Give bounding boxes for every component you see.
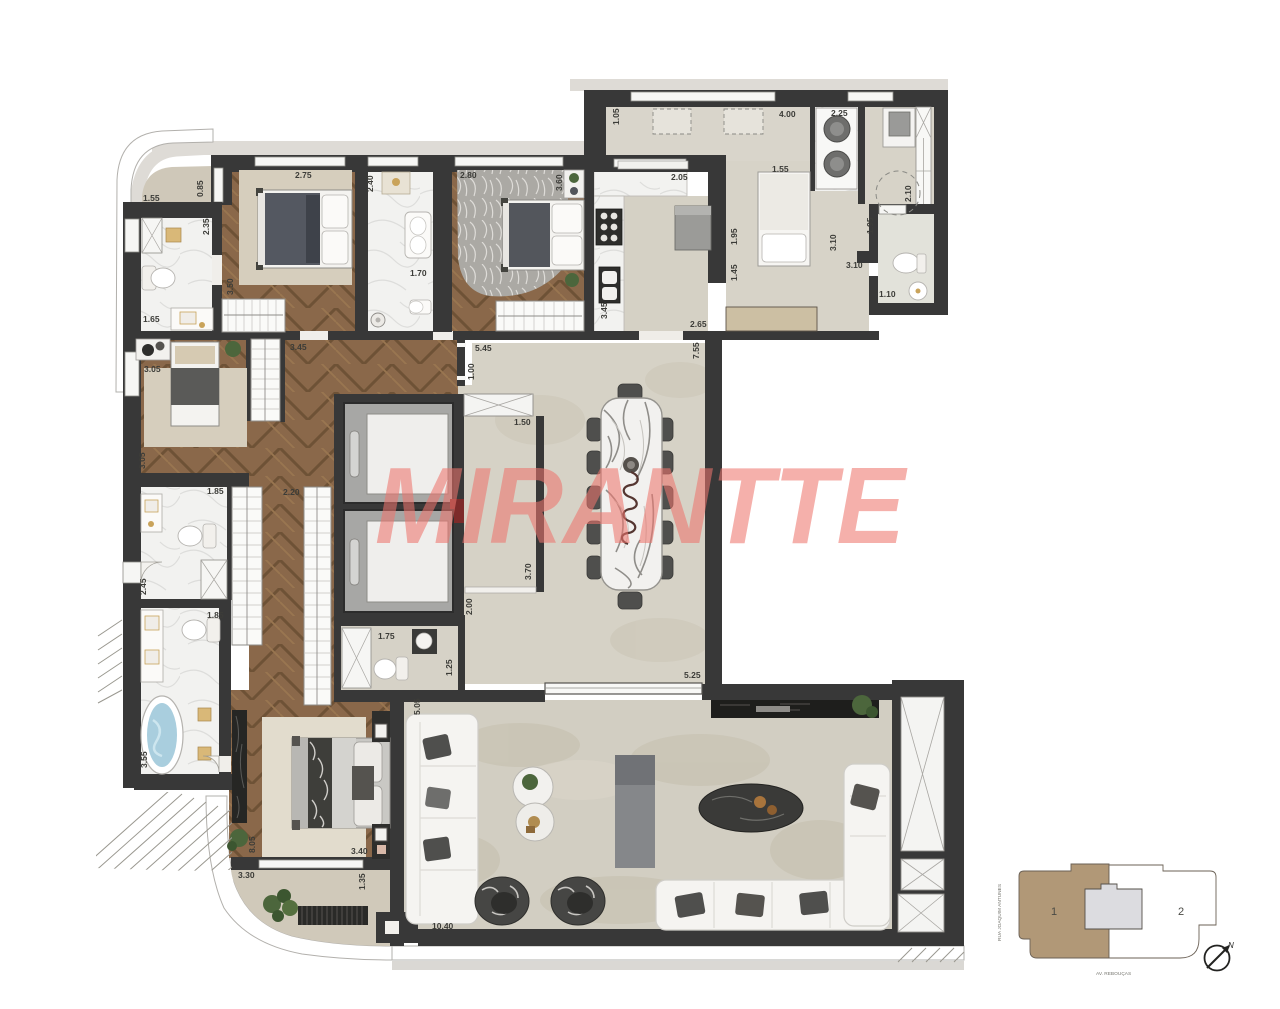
- svg-text:2.10: 2.10: [903, 185, 913, 202]
- svg-text:1.00: 1.00: [466, 363, 476, 380]
- svg-text:1.10: 1.10: [879, 289, 896, 299]
- svg-text:3.05: 3.05: [137, 452, 147, 469]
- svg-text:1.75: 1.75: [378, 631, 395, 641]
- svg-text:1.35: 1.35: [357, 873, 367, 890]
- svg-text:0.85: 0.85: [195, 180, 205, 197]
- svg-text:3.30: 3.30: [238, 870, 255, 880]
- svg-text:2.05: 2.05: [671, 172, 688, 182]
- svg-text:1.95: 1.95: [865, 217, 875, 234]
- svg-text:1.85: 1.85: [207, 610, 224, 620]
- svg-text:2.25: 2.25: [831, 108, 848, 118]
- svg-text:N: N: [1228, 941, 1234, 950]
- svg-text:3.45: 3.45: [599, 302, 609, 319]
- svg-text:1.05: 1.05: [611, 108, 621, 125]
- svg-text:1.55: 1.55: [143, 193, 160, 203]
- svg-text:1.70: 1.70: [410, 268, 427, 278]
- svg-text:3.40: 3.40: [351, 846, 368, 856]
- svg-text:2.35: 2.35: [201, 218, 211, 235]
- svg-text:10.40: 10.40: [432, 921, 454, 931]
- svg-text:1.25: 1.25: [444, 659, 454, 676]
- svg-text:7.55: 7.55: [691, 342, 701, 359]
- svg-text:2.20: 2.20: [283, 487, 300, 497]
- svg-text:5.05: 5.05: [412, 698, 422, 715]
- svg-text:1.55: 1.55: [772, 164, 789, 174]
- svg-text:2.40: 2.40: [365, 175, 375, 192]
- svg-text:4.00: 4.00: [779, 109, 796, 119]
- svg-text:1.85: 1.85: [207, 486, 224, 496]
- svg-text:1.65: 1.65: [143, 314, 160, 324]
- svg-text:8.05: 8.05: [247, 836, 257, 853]
- svg-text:3.45: 3.45: [290, 342, 307, 352]
- svg-text:3.60: 3.60: [554, 174, 564, 191]
- svg-text:2: 2: [1178, 906, 1184, 918]
- svg-text:AV. REBOUÇAS: AV. REBOUÇAS: [1096, 971, 1131, 977]
- svg-text:1.45: 1.45: [729, 264, 739, 281]
- svg-text:1.50: 1.50: [514, 417, 531, 427]
- svg-text:3.10: 3.10: [828, 234, 838, 251]
- svg-text:2.75: 2.75: [295, 170, 312, 180]
- svg-text:3.50: 3.50: [225, 278, 235, 295]
- svg-text:3.05: 3.05: [144, 364, 161, 374]
- svg-text:MIRANTTE: MIRANTTE: [375, 445, 908, 567]
- svg-text:3.55: 3.55: [139, 751, 149, 768]
- svg-text:2.45: 2.45: [138, 578, 148, 595]
- svg-text:RUA JOAQUIM ANTUNES: RUA JOAQUIM ANTUNES: [997, 884, 1003, 941]
- svg-text:3.10: 3.10: [846, 260, 863, 270]
- svg-text:1: 1: [1051, 906, 1057, 918]
- svg-text:1.95: 1.95: [729, 228, 739, 245]
- svg-text:2.80: 2.80: [460, 170, 477, 180]
- svg-text:5.45: 5.45: [475, 343, 492, 353]
- svg-text:2.65: 2.65: [690, 319, 707, 329]
- svg-text:5.25: 5.25: [684, 670, 701, 680]
- svg-text:2.00: 2.00: [464, 598, 474, 615]
